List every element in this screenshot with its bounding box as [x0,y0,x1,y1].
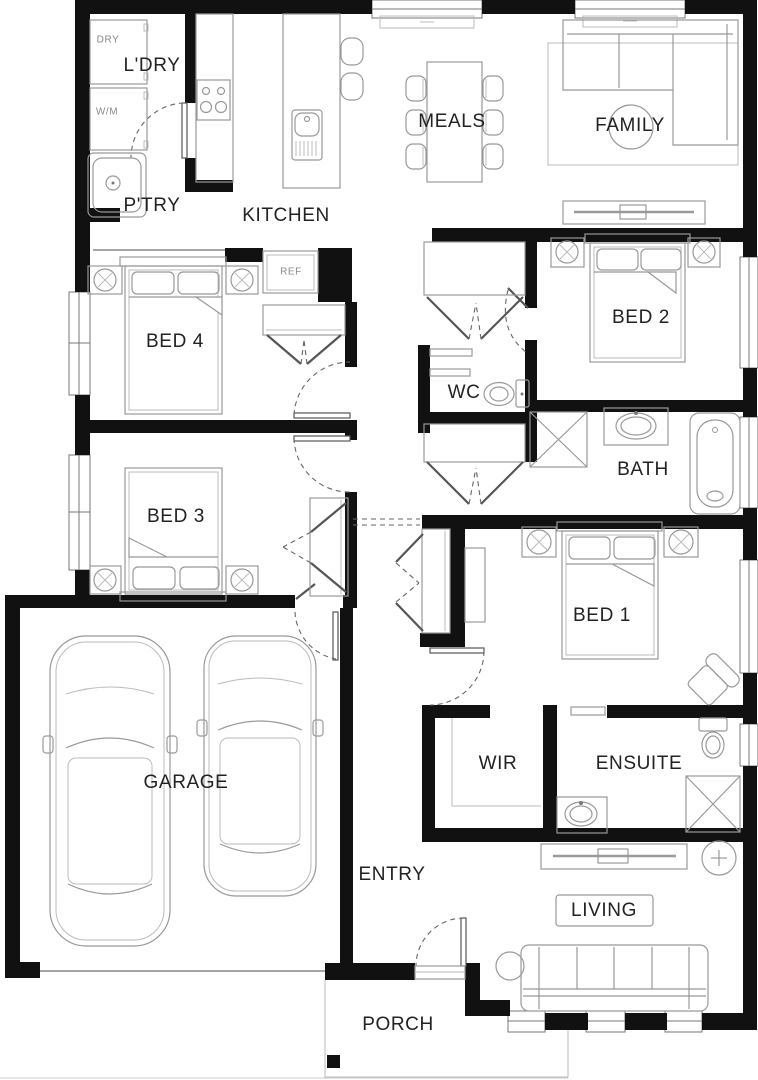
pillow [133,567,175,589]
kitchen-fixtures [196,14,363,188]
room-label-entry: ENTRY [358,864,425,886]
living-sofa [521,945,708,1011]
bedside-table [90,566,121,594]
kitchen-sink-icon [292,110,322,160]
bed3-furniture [90,468,258,601]
room-label-meals: MEALS [418,111,485,133]
toilet-icon [699,718,727,758]
bedside-table [688,238,720,267]
room-label-bath: BATH [617,459,669,481]
stool [341,38,363,65]
room-label-family: FAMILY [595,115,665,137]
dresser [465,548,485,622]
room-label-ensuite: ENSUITE [596,753,683,775]
vanity-icon [604,408,668,445]
appliance-label-washer: W/M [96,107,118,118]
bed3-door-leaf [294,436,350,441]
ensuite-slider [571,707,605,715]
room-label-wir: WIR [479,753,518,775]
bed2-furniture [551,234,720,362]
bed4-door-leaf [294,413,350,418]
living-tv-unit [541,844,687,869]
wc-fixtures [484,380,529,407]
rug [548,43,738,165]
room-label-kitchen: KITCHEN [242,205,330,227]
appliance-label-dryer: DRY [97,35,120,46]
bedside-table [551,238,584,267]
kitchen-bench [196,14,233,182]
room-label-pantry: P'TRY [124,195,181,217]
appliance-label-fridge: REF [280,267,302,278]
cooktop-icon [197,80,230,120]
bedside-table [226,566,258,594]
living-furniture [496,841,736,1011]
car [197,636,323,896]
pillow [597,249,638,270]
porch-outline [0,980,568,1078]
pillow [569,537,610,559]
bed1-door-leaf [430,648,484,653]
room-label-living: LIVING [571,900,637,922]
pillow [614,537,655,559]
pillow [180,567,219,589]
side-table [702,841,736,875]
bedside-table [88,266,122,294]
room-label-wc: WC [448,382,481,404]
bedside-table [522,527,556,557]
island-bench [283,14,340,188]
shower-icon [530,412,587,467]
bedside-table [226,266,258,294]
laundry-fixtures [88,20,148,217]
garage-cars [40,636,325,971]
room-label-bed4: BED 4 [146,331,204,353]
shower-icon [686,776,740,832]
bedside-table [664,527,698,557]
porch-post [327,1055,340,1068]
floor-plan-drawing [0,0,758,1080]
room-label-porch: PORCH [362,1014,434,1036]
room-label-bed1: BED 1 [573,605,631,627]
washer-icon [90,88,147,150]
floor-plan: L'DRY P'TRY KITCHEN MEALS FAMILY BED 4 B… [0,0,758,1080]
bathtub-icon [690,413,740,514]
room-label-laundry: L'DRY [124,55,181,77]
room-label-garage: GARAGE [144,772,229,794]
laundry-door-leaf [182,103,187,158]
interior-walls [75,14,757,842]
front-door-leaf [461,918,466,966]
armchair [684,651,742,709]
toilet-icon [484,380,529,407]
stool [341,73,363,100]
garage-door-leaf [333,612,338,660]
room-label-bed3: BED 3 [147,506,205,528]
room-label-bed2: BED 2 [612,307,670,329]
vanity-icon [557,797,607,833]
round-table [496,952,524,980]
family-tv-unit [563,201,705,224]
ensuite-fixtures [557,718,740,833]
wc-slider [430,349,472,356]
pillow [132,272,174,294]
pillow [641,249,681,270]
pillow [178,272,219,294]
